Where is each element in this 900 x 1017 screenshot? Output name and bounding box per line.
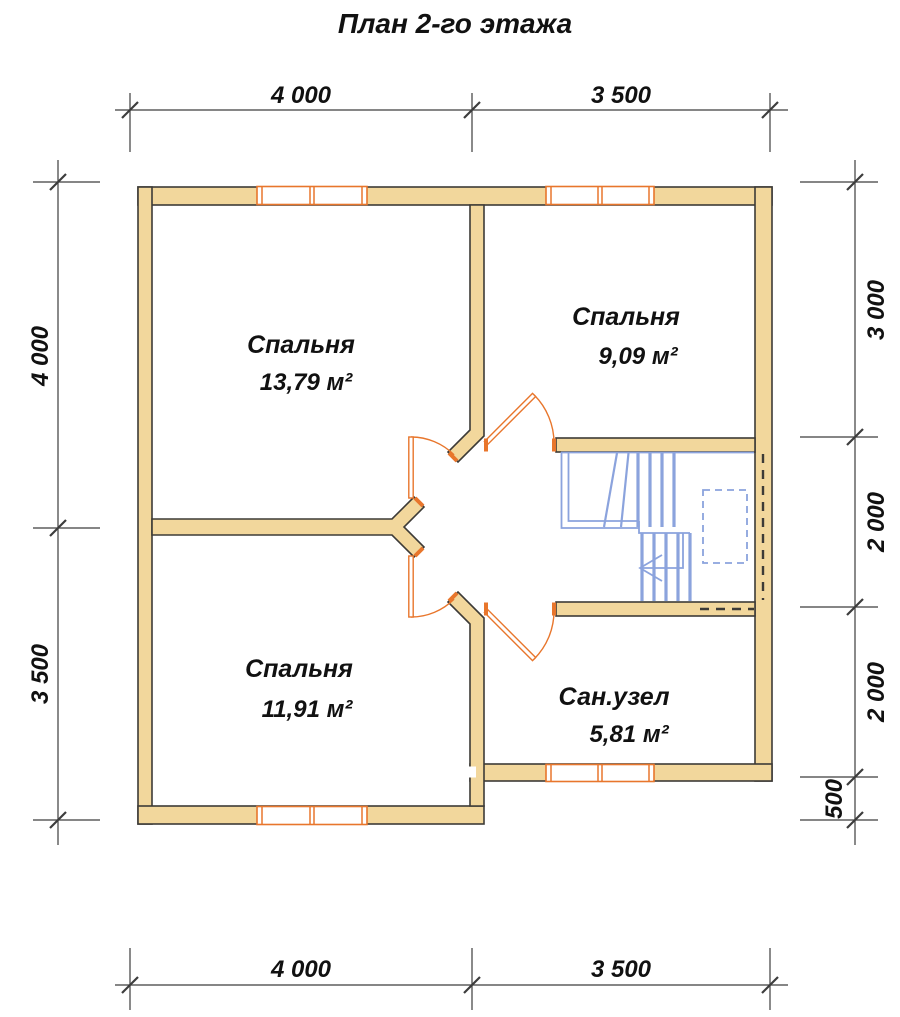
room-name-bedroom3: Спальня	[245, 655, 353, 683]
page-title: План 2-го этажа	[338, 8, 572, 39]
stair-opening-above-dashed	[703, 490, 747, 563]
dim-bottom-2: 3 500	[591, 956, 652, 983]
dimension-top: 4 000 3 500	[115, 82, 788, 152]
stair-flight-break	[639, 521, 690, 533]
room-name-bathroom: Сан.узел	[558, 683, 669, 711]
dimension-right: 3 000 2 000 2 000 500	[800, 160, 890, 845]
dim-right-2: 2 000	[863, 491, 890, 553]
floor-plan-drawing: План 2-го этажа	[0, 0, 900, 1017]
dimension-left: 4 000 3 500	[27, 160, 100, 845]
wall-top	[138, 187, 772, 205]
door-bedroom1	[409, 437, 457, 506]
door-bedroom3	[409, 548, 457, 617]
wall-left	[138, 187, 152, 824]
dimension-bottom: 4 000 3 500	[115, 948, 788, 1010]
dim-right-4: 500	[821, 778, 848, 819]
wall-junction-notch	[469, 767, 476, 778]
floor-plan-page: План 2-го этажа	[0, 0, 900, 1017]
wall-right	[755, 187, 772, 781]
door-bedroom2	[484, 393, 554, 451]
room-area-bedroom3: 11,91 м²	[262, 696, 354, 723]
dim-right-1: 3 000	[863, 279, 890, 340]
dim-left-2: 3 500	[27, 643, 54, 704]
dim-top-2: 3 500	[591, 82, 652, 109]
window-bedroom3	[257, 807, 367, 825]
dim-right-3: 2 000	[863, 661, 890, 723]
room-area-bedroom1: 13,79 м²	[260, 369, 353, 396]
dim-bottom-1: 4 000	[270, 956, 332, 983]
wall-bedroom1-bedroom2	[448, 205, 484, 462]
interior-walls	[152, 205, 755, 806]
wall-bedroom2-stairs	[556, 438, 755, 452]
wall-bedroom1-bedroom3	[152, 497, 424, 557]
window-bedroom1	[257, 187, 367, 205]
room-name-bedroom2: Спальня	[572, 303, 680, 331]
stair-winder	[604, 453, 617, 527]
room-area-bathroom: 5,81 м²	[589, 721, 669, 748]
door-bathroom	[484, 603, 554, 661]
window-bathroom	[546, 765, 654, 782]
room-name-bedroom1: Спальня	[247, 331, 355, 359]
stair-winder	[621, 453, 629, 527]
window-bedroom2	[546, 187, 654, 205]
room-area-bedroom2: 9,09 м²	[598, 343, 678, 370]
staircase	[561, 452, 763, 609]
wall-bedroom3-bathroom	[448, 592, 484, 806]
wall-stairs-bathroom	[556, 602, 755, 616]
dim-left-1: 4 000	[27, 325, 54, 387]
dim-top-1: 4 000	[270, 82, 332, 109]
stair-treads-upper	[604, 453, 674, 527]
outer-walls	[138, 187, 772, 824]
